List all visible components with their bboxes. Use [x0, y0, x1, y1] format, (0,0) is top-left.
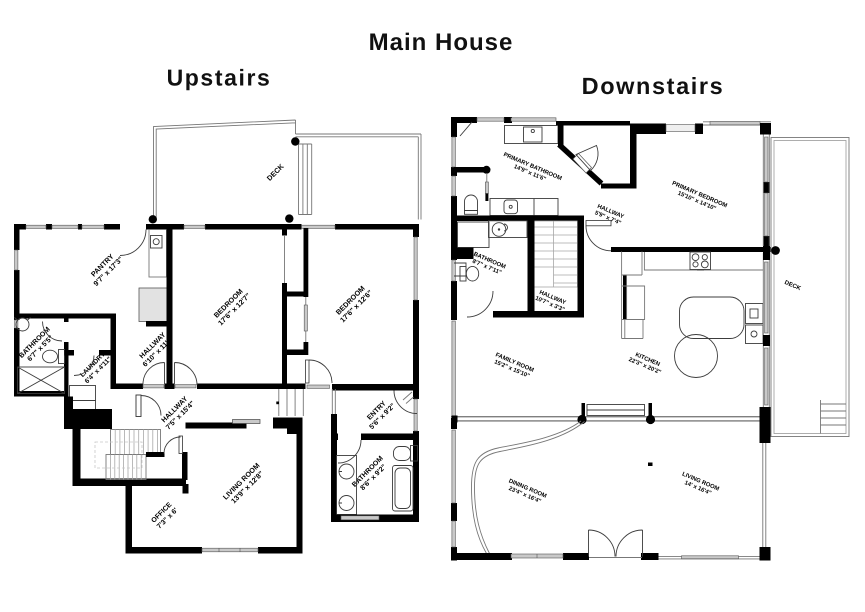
svg-text:Main House: Main House: [369, 29, 514, 56]
svg-text:Downstairs: Downstairs: [582, 73, 725, 99]
svg-text:Upstairs: Upstairs: [167, 65, 272, 91]
